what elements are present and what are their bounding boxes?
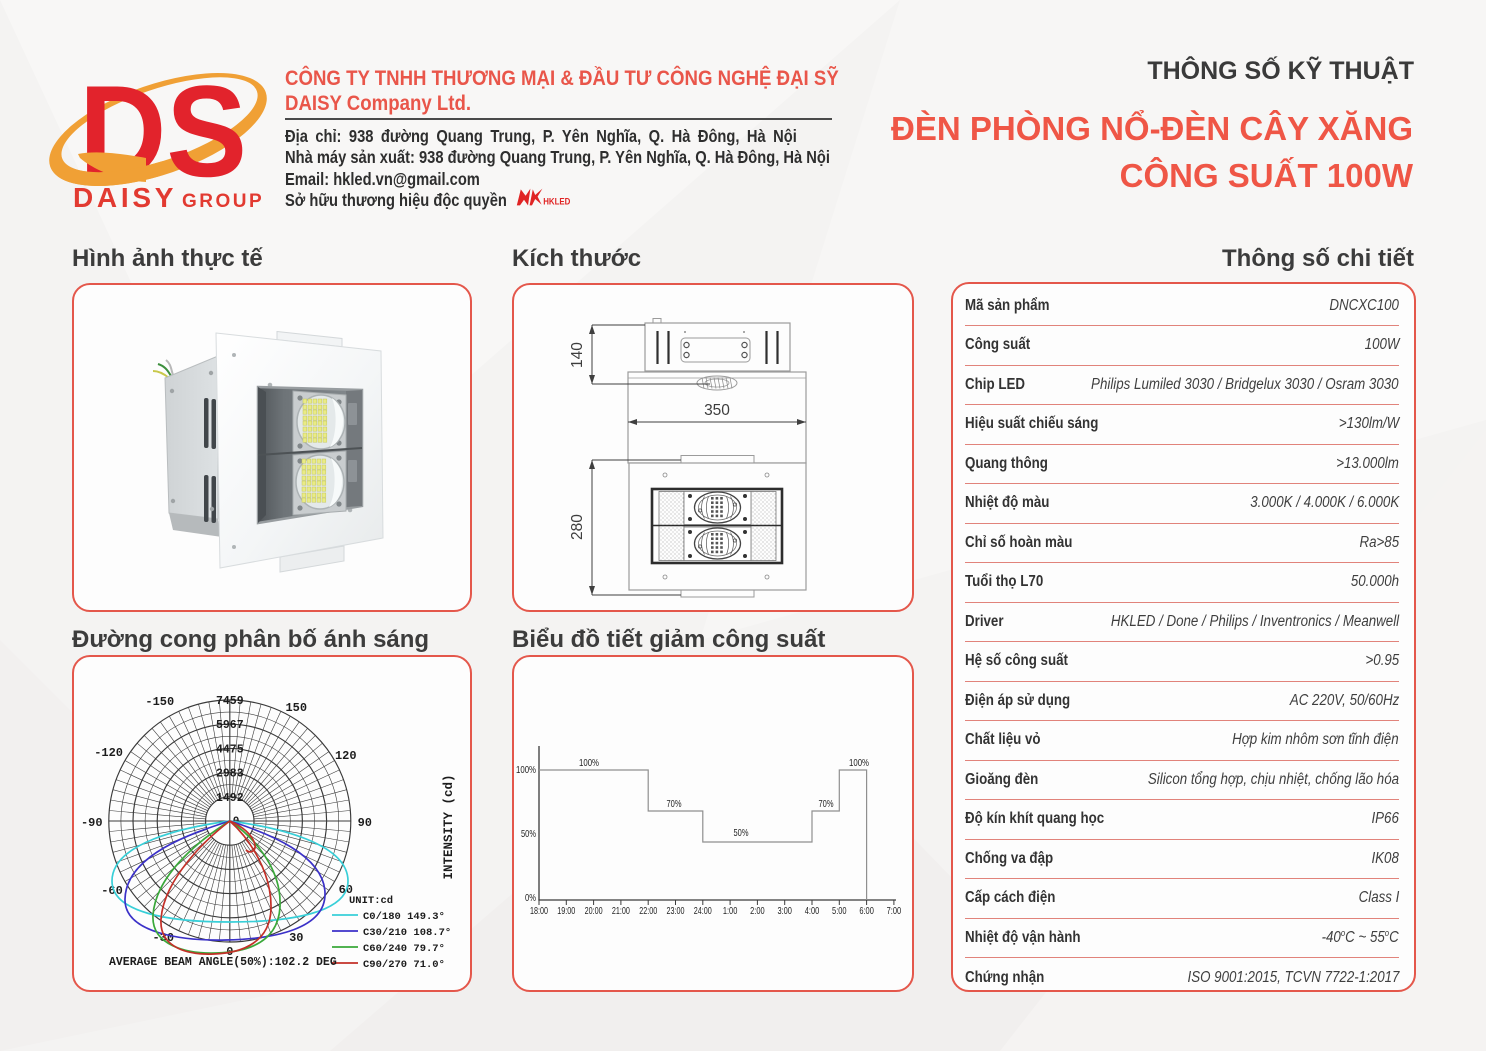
svg-text:3:00: 3:00 xyxy=(777,905,792,917)
svg-text:HKLED: HKLED xyxy=(543,197,571,207)
svg-text:5967: 5967 xyxy=(216,719,244,732)
svg-text:24:00: 24:00 xyxy=(694,905,712,917)
svg-text:AVERAGE BEAM ANGLE(50%):102.2: AVERAGE BEAM ANGLE(50%):102.2 DEG xyxy=(109,956,337,969)
svg-text:350: 350 xyxy=(704,402,730,419)
svg-text:50%: 50% xyxy=(734,827,749,839)
svg-text:21:00: 21:00 xyxy=(612,905,630,917)
svg-text:6:00: 6:00 xyxy=(859,905,874,917)
svg-text:7459: 7459 xyxy=(216,695,244,708)
svg-text:120: 120 xyxy=(335,749,357,763)
svg-text:0%: 0% xyxy=(525,892,536,904)
svg-text:2983: 2983 xyxy=(216,768,244,781)
svg-text:C0/180 149.3°: C0/180 149.3° xyxy=(363,911,445,923)
svg-text:C90/270 71.0°: C90/270 71.0° xyxy=(363,959,445,971)
svg-text:70%: 70% xyxy=(819,798,834,810)
svg-text:GROUP: GROUP xyxy=(182,191,264,212)
svg-text:C60/240 79.7°: C60/240 79.7° xyxy=(363,943,445,955)
svg-text:100%: 100% xyxy=(849,757,869,769)
svg-text:4:00: 4:00 xyxy=(805,905,820,917)
svg-text:-90: -90 xyxy=(81,816,103,830)
svg-text:70%: 70% xyxy=(667,798,682,810)
svg-text:150: 150 xyxy=(285,701,307,715)
svg-text:C30/210 108.7°: C30/210 108.7° xyxy=(363,927,451,939)
svg-text:4475: 4475 xyxy=(216,743,244,756)
svg-text:23:00: 23:00 xyxy=(667,905,685,917)
svg-text:280: 280 xyxy=(569,514,586,540)
svg-text:INTENSITY (cd): INTENSITY (cd) xyxy=(442,774,456,879)
svg-text:100%: 100% xyxy=(579,757,599,769)
svg-text:-150: -150 xyxy=(145,695,174,709)
svg-text:2:00: 2:00 xyxy=(750,905,765,917)
svg-text:-120: -120 xyxy=(94,746,123,760)
svg-text:140: 140 xyxy=(569,342,586,368)
svg-text:18:00: 18:00 xyxy=(530,905,548,917)
svg-text:90: 90 xyxy=(358,816,372,830)
svg-text:5:00: 5:00 xyxy=(832,905,847,917)
svg-text:22:00: 22:00 xyxy=(639,905,657,917)
svg-text:50%: 50% xyxy=(521,828,536,840)
svg-text:30: 30 xyxy=(289,931,303,945)
svg-text:19:00: 19:00 xyxy=(557,905,575,917)
svg-text:20:00: 20:00 xyxy=(585,905,603,917)
svg-text:1:00: 1:00 xyxy=(723,905,738,917)
svg-text:1492: 1492 xyxy=(216,792,244,805)
svg-text:DAISY: DAISY xyxy=(73,182,177,213)
svg-text:100%: 100% xyxy=(516,764,536,776)
svg-text:7:00: 7:00 xyxy=(887,905,902,917)
svg-text:UNIT:cd: UNIT:cd xyxy=(349,895,393,907)
